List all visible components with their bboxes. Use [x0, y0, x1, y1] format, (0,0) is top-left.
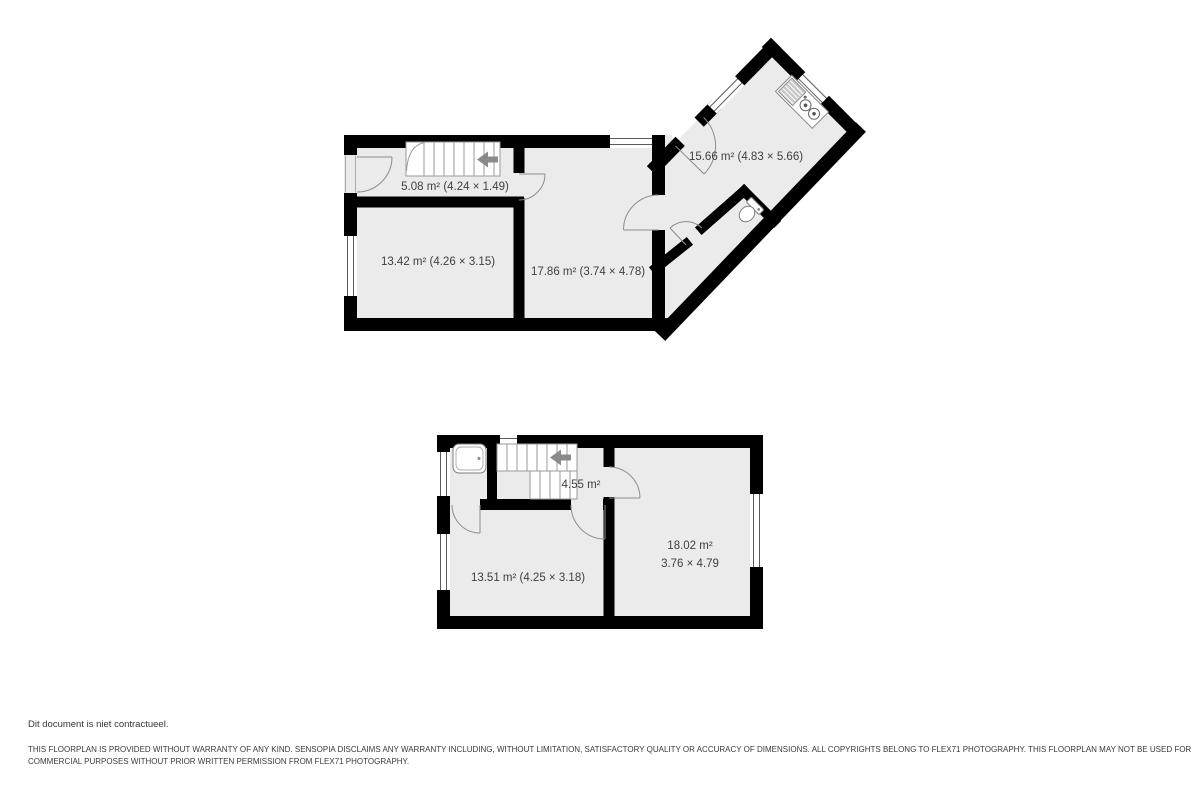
floorplan-page: 5.08 m² (4.24 × 1.49) 13.42 m² (4.26 × 3… — [0, 0, 1200, 800]
left-bedroom-area-label: 13.51 m² (4.25 × 3.18) — [471, 572, 585, 584]
wall-angled-nw-2 — [704, 109, 712, 118]
bathtub-icon — [453, 444, 486, 473]
right-bedroom-area-label: 18.02 m² — [667, 540, 713, 552]
landing-area-label: 4.55 m² — [562, 479, 601, 491]
floorplan-canvas: 5.08 m² (4.24 × 1.49) 13.42 m² (4.26 × 3… — [0, 0, 1200, 800]
hallway-area-label: 5.08 m² (4.24 × 1.49) — [401, 181, 509, 193]
room-fill-main — [344, 135, 672, 331]
right-bedroom-dims-label: 3.76 × 4.79 — [661, 558, 719, 570]
first-floor-plan: 5.08 m² (4.24 × 1.49) 13.42 m² (4.26 × 3… — [344, 46, 858, 333]
front-room-area-label: 13.42 m² (4.26 × 3.15) — [381, 256, 495, 268]
middle-room-area-label: 17.86 m² (3.74 × 4.78) — [531, 266, 645, 278]
disclaimer-line-1: THIS FLOORPLAN IS PROVIDED WITHOUT WARRA… — [28, 745, 1191, 754]
stairs-ground-floor — [406, 142, 500, 176]
kitchen-area-label: 15.66 m² (4.83 × 5.66) — [689, 151, 803, 163]
disclaimer-line-2: COMMERCIAL PURPOSES WITHOUT PRIOR WRITTE… — [28, 757, 409, 766]
footer: Dit document is niet contractueel. THIS … — [28, 719, 1191, 766]
room-fill-angled — [650, 46, 858, 333]
second-floor-plan: 4.55 m² 18.02 m² 3.76 × 4.79 13.51 m² (4… — [437, 435, 763, 629]
contract-note: Dit document is niet contractueel. — [28, 719, 168, 730]
